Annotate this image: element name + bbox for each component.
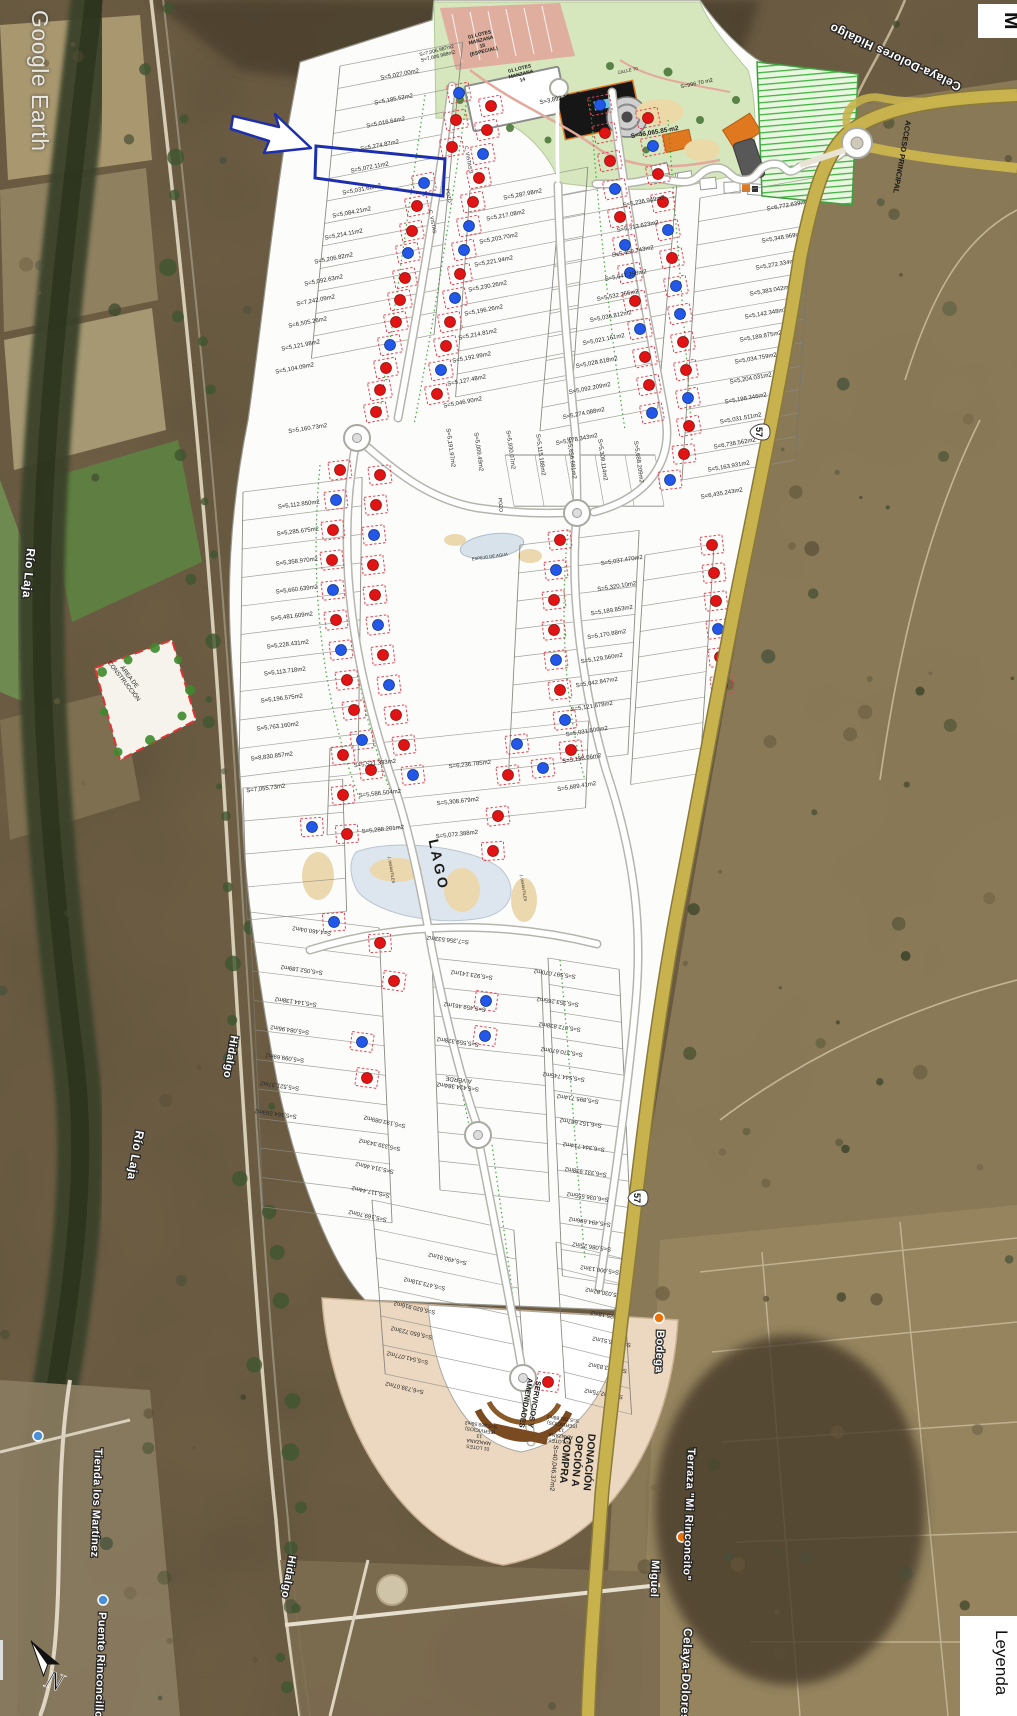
lot-status-dot-red [468, 197, 479, 208]
plan-special-label: DONACIÓNOPCIÓN ACOMPRA [556, 1431, 598, 1491]
lot-status-dot-red [482, 125, 493, 136]
lot-status-dot-red [503, 770, 514, 781]
lot-status-dot-blue [336, 645, 347, 656]
lot-status-dot-blue [560, 715, 571, 726]
lot-status-dot-blue [459, 245, 470, 256]
lot-status-dot-red [327, 555, 338, 566]
lot-status-dot-blue [373, 620, 384, 631]
google-earth-watermark: Google Earth [27, 10, 53, 152]
lot-status-dot-blue [671, 281, 682, 292]
lot-status-dot-red [381, 363, 392, 374]
lot-status-dot-blue [610, 184, 621, 195]
lot-status-dot-blue [307, 822, 318, 833]
lot-status-dot-blue [464, 221, 475, 232]
lot-status-dot-blue [481, 996, 492, 1007]
lot-status-dot-red [643, 113, 654, 124]
lot-status-dot-red [566, 745, 577, 756]
lot-status-dot-red [335, 465, 346, 476]
lot-status-dot-red [375, 385, 386, 396]
lot-status-dot-red [605, 156, 616, 167]
lot-status-dot-blue [713, 624, 724, 635]
lot-status-dot-blue [328, 585, 339, 596]
lot-status-dot-blue [512, 739, 523, 750]
lot-status-dot-blue [357, 1037, 368, 1048]
svg-text:57: 57 [632, 1193, 642, 1203]
lot-status-dot-red [678, 337, 689, 348]
lot-status-dot-blue [450, 293, 461, 304]
lot-status-dot-red [412, 201, 423, 212]
lot-status-dot-blue [551, 565, 562, 576]
lot-status-dot-red [543, 1377, 554, 1388]
lot-status-dot-red [486, 101, 497, 112]
lot-status-dot-red [328, 525, 339, 536]
lot-status-dot-blue [478, 149, 489, 160]
poi-marker-icon[interactable] [33, 1431, 43, 1441]
lot-status-dot-blue [663, 225, 674, 236]
lot-status-dot-red [400, 273, 411, 284]
poi-marker-icon[interactable] [654, 1313, 664, 1323]
lot-status-dot-blue [665, 475, 676, 486]
lot-status-dot-red [474, 173, 485, 184]
lot-status-dot-blue [648, 141, 659, 152]
lot-status-dot-red [441, 341, 452, 352]
lot-status-dot-red [362, 1073, 373, 1084]
lot-status-dot-red [389, 976, 400, 987]
lot-status-dot-blue [683, 393, 694, 404]
plan-special-label: POZO [496, 498, 503, 513]
m-panel: M [978, 4, 1017, 38]
lot-status-dot-blue [329, 917, 340, 928]
lot-status-dot-red [681, 365, 692, 376]
lot-status-dot-blue [403, 248, 414, 259]
lot-status-dot-blue [551, 655, 562, 666]
lot-status-dot-red [375, 470, 386, 481]
lot-status-dot-red [407, 226, 418, 237]
lot-status-dot-red [375, 938, 386, 949]
lot-status-dot-red [368, 560, 379, 571]
lot-status-dot-red [338, 790, 349, 801]
lot-status-dot-blue [436, 365, 447, 376]
lot-status-dot-red [342, 829, 353, 840]
lot-status-dot-red [399, 740, 410, 751]
lot-status-dot-red [630, 296, 641, 307]
lot-status-dot-red [615, 212, 626, 223]
lot-status-dot-red [555, 685, 566, 696]
lot-status-dot-blue [635, 324, 646, 335]
lot-status-dot-blue [675, 309, 686, 320]
lot-status-dot-blue [419, 178, 430, 189]
lot-status-dot-blue [369, 530, 380, 541]
lot-status-dot-red [371, 500, 382, 511]
lot-status-dot-red [549, 595, 560, 606]
lot-status-dot-red [640, 352, 651, 363]
lot-status-dot-red [378, 650, 389, 661]
lot-status-dot-red [338, 750, 349, 761]
lot-status-dot-red [349, 705, 360, 716]
lot-status-dot-blue [408, 770, 419, 781]
lot-status-dot-red [653, 169, 664, 180]
lot-status-dot-red [432, 389, 443, 400]
legend-panel[interactable]: Leyenda [960, 1616, 1017, 1716]
lot-status-dot-red [371, 407, 382, 418]
lot-status-dot-red [391, 317, 402, 328]
scrollbar-fragment [0, 1640, 3, 1680]
lot-status-dot-red [644, 380, 655, 391]
lot-status-dot-red [451, 115, 462, 126]
poi-marker-icon[interactable] [98, 1595, 108, 1605]
lot-status-dot-blue [331, 495, 342, 506]
lot-status-dot-blue [357, 735, 368, 746]
lot-status-dot-red [370, 590, 381, 601]
lot-status-dot-blue [384, 680, 395, 691]
google-earth-viewport[interactable]: S=5,027.00m2S=5,185.52m2S=5,016.64m2S=5,… [0, 0, 1017, 1716]
m-panel-label: M [1000, 12, 1017, 30]
lot-status-dot-red [455, 269, 466, 280]
lot-status-dot-red [555, 535, 566, 546]
lot-status-dot-blue [538, 763, 549, 774]
lot-status-dot-blue [454, 88, 465, 99]
lot-status-dot-red [679, 449, 690, 460]
lot-status-dot-red [445, 317, 456, 328]
lot-status-dot-red [709, 568, 720, 579]
poi-label[interactable]: Miguel [648, 1560, 661, 1598]
lot-status-dot-red [342, 675, 353, 686]
lot-status-dot-blue [647, 408, 658, 419]
lot-status-dot-red [707, 540, 718, 551]
lot-status-dot-red [447, 142, 458, 153]
lot-status-dot-red [667, 253, 678, 264]
lot-status-dot-red [600, 128, 611, 139]
lot-status-dot-red [493, 811, 504, 822]
lot-status-dot-red [684, 421, 695, 432]
lot-status-dot-red [549, 625, 560, 636]
map-canvas[interactable]: S=5,027.00m2S=5,185.52m2S=5,016.64m2S=5,… [0, 0, 1017, 1716]
svg-text:57: 57 [754, 427, 764, 437]
poi-label[interactable]: Bodega [652, 1330, 666, 1374]
legend-panel-label: Leyenda [992, 1630, 1011, 1696]
lot-status-dot-blue [595, 100, 606, 111]
lot-status-dot-blue [480, 1031, 491, 1042]
lot-status-dot-red [488, 846, 499, 857]
lot-status-dot-red [711, 596, 722, 607]
lot-status-dot-red [331, 615, 342, 626]
lot-status-dot-blue [385, 340, 396, 351]
lot-status-dot-red [391, 710, 402, 721]
lot-status-dot-red [395, 295, 406, 306]
